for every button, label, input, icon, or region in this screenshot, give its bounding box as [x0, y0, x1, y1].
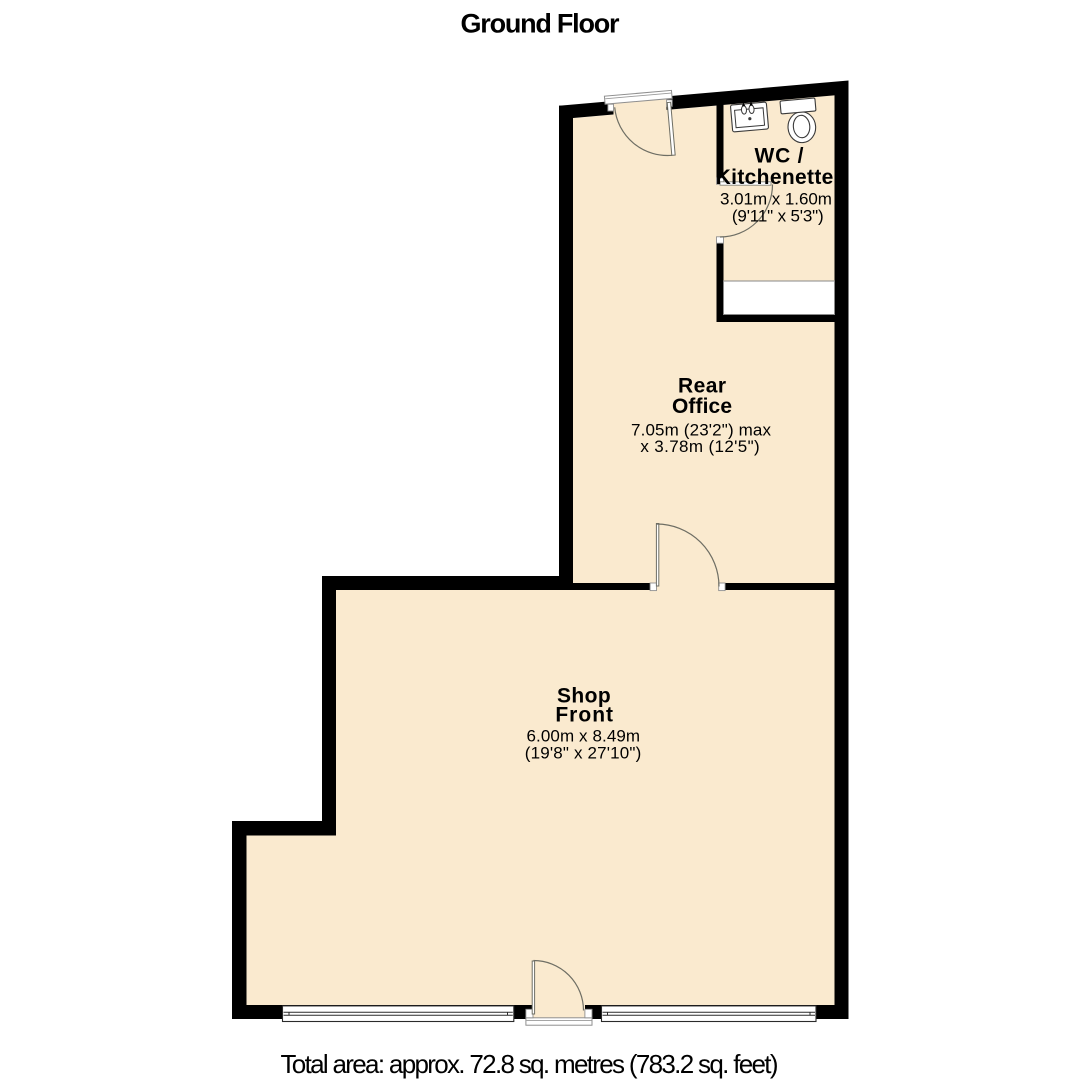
svg-text:Front: Front	[555, 704, 613, 727]
svg-text:WC /: WC /	[755, 144, 804, 167]
svg-text:(19'8" x 27'10"): (19'8" x 27'10")	[525, 744, 642, 763]
svg-text:Kitchenette: Kitchenette	[716, 166, 834, 189]
svg-text:Total area: approx. 72.8 sq. m: Total area: approx. 72.8 sq. metres (783…	[281, 1049, 779, 1079]
svg-text:(9'11" x 5'3"): (9'11" x 5'3")	[732, 206, 824, 225]
svg-text:Rear: Rear	[678, 374, 726, 397]
svg-text:Office: Office	[672, 395, 732, 418]
svg-text:Ground Floor: Ground Floor	[461, 9, 620, 39]
svg-text:x 3.78m (12'5"): x 3.78m (12'5")	[640, 437, 759, 456]
